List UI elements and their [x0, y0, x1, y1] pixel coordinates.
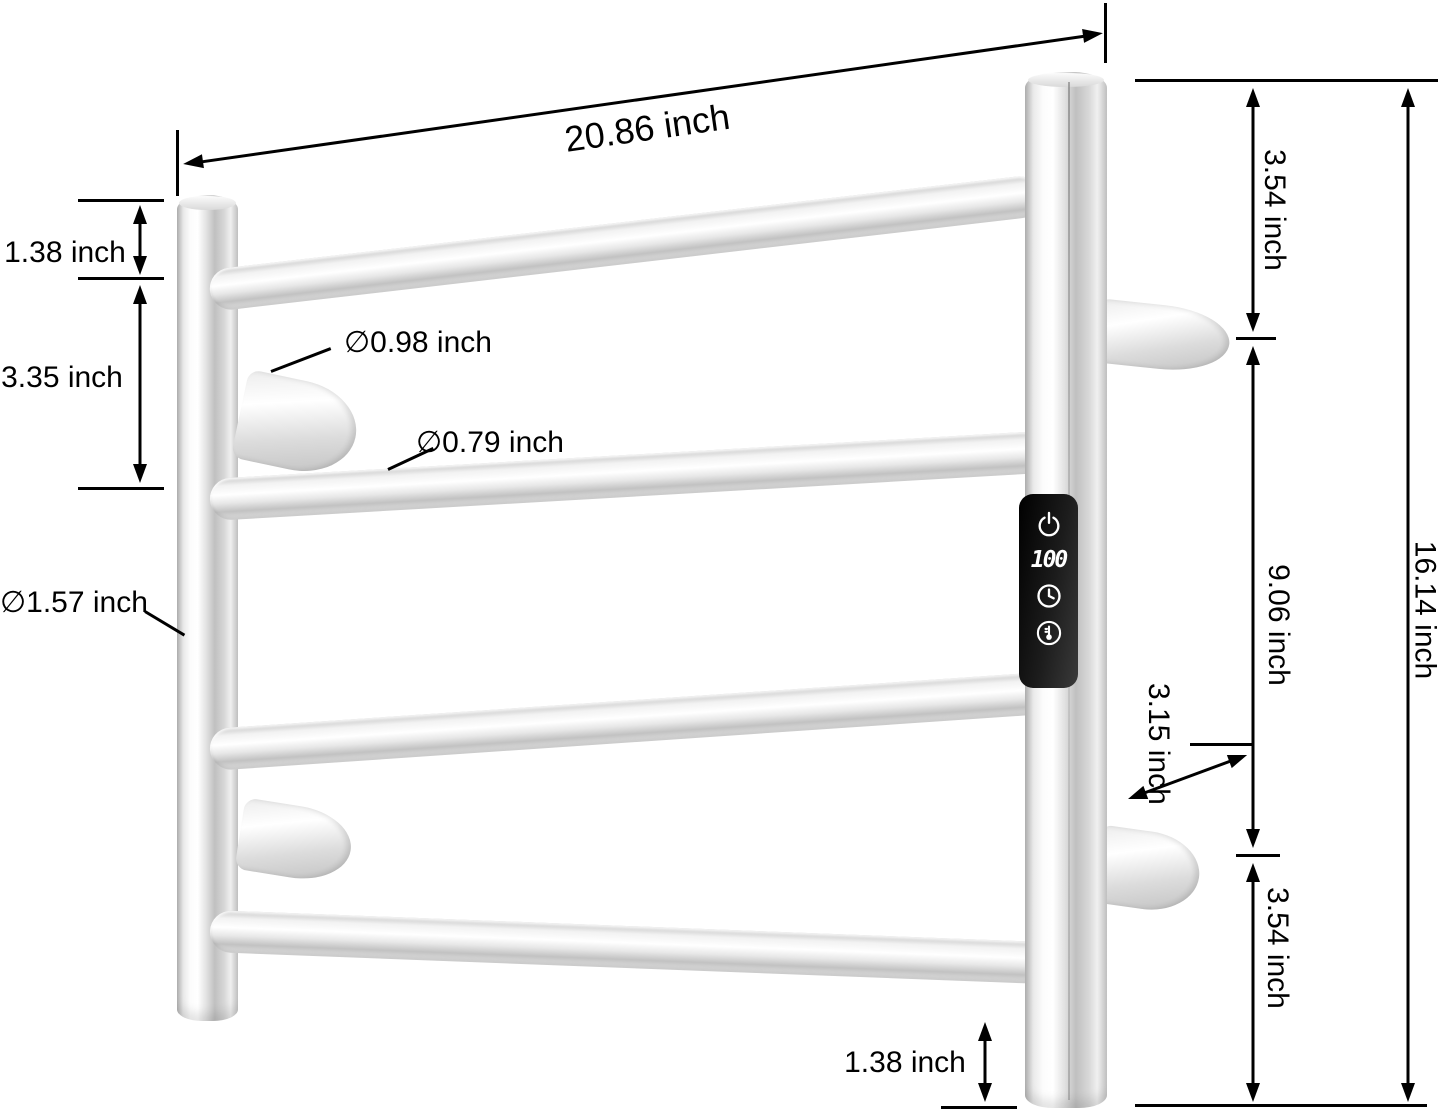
bottom-offset-label: 1.38 inch	[835, 1046, 975, 1080]
towel-bar-4	[209, 910, 1046, 984]
right-top-offset-label: 3.54 inch	[1257, 146, 1291, 274]
dimension-arrow-top-offset-left	[133, 205, 147, 275]
right-bottom-offset-label: 3.54 inch	[1260, 884, 1294, 1012]
towel-warmer-dimension-diagram: 100 20.86 inch 1.38 inch 3.	[0, 0, 1445, 1117]
tick-bracket-length	[1190, 743, 1252, 746]
extension-line-left-3	[78, 487, 164, 490]
panel-display: 100	[1031, 549, 1067, 572]
extension-line-right-bottom	[1135, 1104, 1427, 1107]
power-icon	[1035, 510, 1063, 538]
dimension-arrow-bracket-spacing	[1246, 346, 1260, 848]
left-hook-top	[231, 369, 365, 482]
timer-icon	[1035, 582, 1063, 610]
extension-line-bottom-center	[941, 1106, 1017, 1109]
dimension-width: 20.86 inch	[183, 32, 1103, 163]
hook-diameter-leader	[270, 347, 331, 373]
towel-bar-3	[209, 672, 1046, 771]
bar-diameter-label: ∅0.79 inch	[405, 426, 575, 460]
left-hook-bottom	[234, 797, 356, 886]
extension-line-top-left	[176, 130, 179, 196]
hook-diameter-label: ∅0.98 inch	[333, 326, 503, 360]
control-panel: 100	[1019, 494, 1078, 688]
extension-line-right-top	[1135, 79, 1438, 82]
total-height-label: 16.14 inch	[1408, 538, 1442, 683]
tick-right-1	[1236, 337, 1276, 340]
right-wall-bracket-top	[1092, 298, 1233, 376]
tick-right-2	[1236, 854, 1280, 857]
towel-bar-1	[208, 174, 1043, 312]
post-diameter-label: ∅1.57 inch	[0, 586, 146, 620]
dimension-arrow-rail-spacing	[133, 285, 147, 483]
extension-line-left-2	[78, 277, 164, 280]
dimension-arrow-bottom-offset	[978, 1022, 992, 1102]
bracket-spacing-label: 9.06 inch	[1261, 561, 1295, 689]
left-post	[177, 195, 238, 1021]
extension-line-left-1	[78, 199, 164, 202]
top-offset-left-label: 1.38 inch	[2, 236, 128, 270]
dimension-arrow-right-bottom-offset	[1246, 863, 1260, 1102]
rail-spacing-label: 3.35 inch	[0, 361, 124, 395]
bracket-length-label: 3.15 inch	[1141, 683, 1175, 803]
temperature-icon	[1035, 619, 1063, 647]
